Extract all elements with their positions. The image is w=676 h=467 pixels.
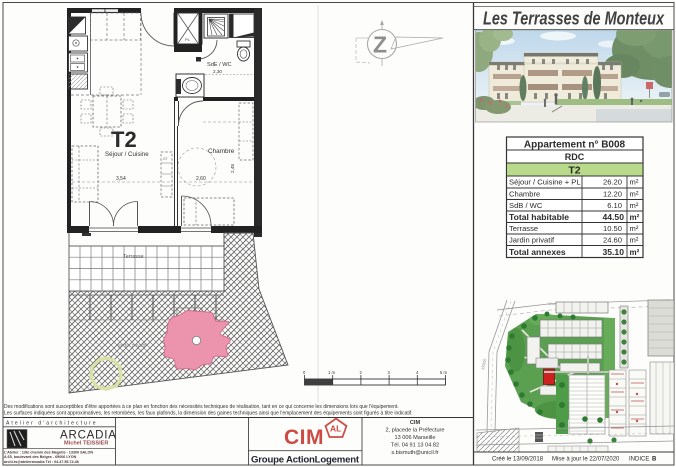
svg-text:5 m: 5 m bbox=[440, 370, 447, 375]
svg-text:archi.ts@atelierarcadia: archi.ts@atelierarcadia Tél : 04.47.55.7… bbox=[4, 460, 79, 464]
svg-text:2, placede la Préfecture: 2, placede la Préfecture bbox=[385, 428, 444, 434]
svg-text:T2: T2 bbox=[568, 165, 580, 177]
svg-text:SdB / WC: SdB / WC bbox=[509, 201, 543, 210]
svg-text:Chambre: Chambre bbox=[509, 190, 540, 199]
svg-text:Les Terrasses de Monteux: Les Terrasses de Monteux bbox=[483, 9, 665, 29]
svg-text:m²: m² bbox=[630, 236, 639, 245]
svg-text:13 006 Marseille: 13 006 Marseille bbox=[394, 435, 435, 441]
svg-text:Atelier d'architecture: Atelier d'architecture bbox=[6, 421, 98, 427]
svg-text:CIM: CIM bbox=[410, 420, 421, 426]
svg-text:3,54: 3,54 bbox=[116, 176, 126, 182]
svg-text:JX020: JX020 bbox=[480, 357, 487, 370]
svg-text:Total annexes: Total annexes bbox=[509, 247, 566, 257]
svg-text:PL: PL bbox=[185, 37, 191, 42]
svg-text:T2: T2 bbox=[111, 127, 137, 152]
svg-text:Groupe ActionLogement: Groupe ActionLogement bbox=[251, 455, 360, 466]
svg-text:m²: m² bbox=[630, 190, 639, 199]
svg-text:B: B bbox=[652, 457, 657, 463]
svg-text:Z: Z bbox=[373, 32, 387, 58]
svg-text:Terrasse: Terrasse bbox=[509, 224, 538, 233]
svg-text:m²: m² bbox=[630, 224, 639, 233]
svg-text:jardin privatif: jardin privatif bbox=[117, 343, 147, 349]
svg-text:Créé le 13/09/2018: Créé le 13/09/2018 bbox=[492, 457, 544, 463]
svg-text:m²: m² bbox=[630, 178, 639, 187]
svg-text:12.20: 12.20 bbox=[603, 190, 622, 199]
svg-text:Des modifications sont suscept: Des modifications sont susceptibles d'êt… bbox=[4, 404, 399, 410]
svg-text:Appartement n° B008: Appartement n° B008 bbox=[524, 140, 626, 151]
svg-text:RDC: RDC bbox=[565, 152, 585, 162]
svg-text:2: 2 bbox=[360, 370, 363, 375]
svg-text:1 m: 1 m bbox=[328, 370, 335, 375]
svg-text:Séjour / Cuisine: Séjour / Cuisine bbox=[105, 151, 149, 158]
svg-text:CIM: CIM bbox=[284, 426, 324, 449]
svg-text:2,30: 2,30 bbox=[213, 69, 222, 74]
svg-text:Total habitable: Total habitable bbox=[509, 212, 569, 222]
svg-text:10.50: 10.50 bbox=[603, 224, 622, 233]
svg-text:0: 0 bbox=[303, 370, 306, 375]
svg-text:m²: m² bbox=[630, 213, 640, 222]
svg-text:Les surfaces indiquées sont ap: Les surfaces indiquées sont approximativ… bbox=[4, 411, 413, 417]
svg-text:Mise à jour le 22/07/2020: Mise à jour le 22/07/2020 bbox=[552, 457, 620, 463]
svg-text:m²: m² bbox=[630, 248, 640, 257]
svg-text:3: 3 bbox=[388, 370, 391, 375]
svg-text:L'Atelier : 13té chemin des Ma: L'Atelier : 13té chemin des Magotis - 13… bbox=[4, 451, 93, 455]
svg-text:44.50: 44.50 bbox=[602, 212, 624, 222]
svg-text:m²: m² bbox=[630, 201, 639, 210]
svg-text:INDICE: INDICE bbox=[629, 457, 649, 463]
svg-text:SdE / WC: SdE / WC bbox=[207, 62, 232, 68]
svg-text:s.bismuth@unicil.fr: s.bismuth@unicil.fr bbox=[391, 450, 438, 456]
svg-text:24.60: 24.60 bbox=[603, 236, 622, 245]
svg-text:2,60: 2,60 bbox=[196, 176, 206, 182]
svg-text:6.10: 6.10 bbox=[607, 201, 622, 210]
svg-text:26.20: 26.20 bbox=[603, 178, 622, 187]
svg-text:2,48: 2,48 bbox=[230, 164, 235, 173]
svg-text:35.10: 35.10 bbox=[602, 247, 624, 257]
svg-text:Jardin privatif: Jardin privatif bbox=[509, 236, 555, 245]
svg-text:A 65, boulevard des Belges - 6: A 65, boulevard des Belges - 69006 LYON bbox=[4, 455, 77, 459]
svg-text:GT: GT bbox=[163, 157, 167, 161]
svg-text:AL: AL bbox=[330, 424, 341, 434]
svg-text:Séjour / Cuisine + PL: Séjour / Cuisine + PL bbox=[509, 178, 581, 187]
svg-text:Chambre: Chambre bbox=[208, 148, 235, 155]
svg-text:4: 4 bbox=[416, 370, 419, 375]
svg-text:Michel TEISSIER: Michel TEISSIER bbox=[64, 441, 108, 447]
svg-text:Terrasse: Terrasse bbox=[123, 254, 144, 260]
svg-text:Tél. 04 91 13 04 82: Tél. 04 91 13 04 82 bbox=[391, 443, 439, 449]
